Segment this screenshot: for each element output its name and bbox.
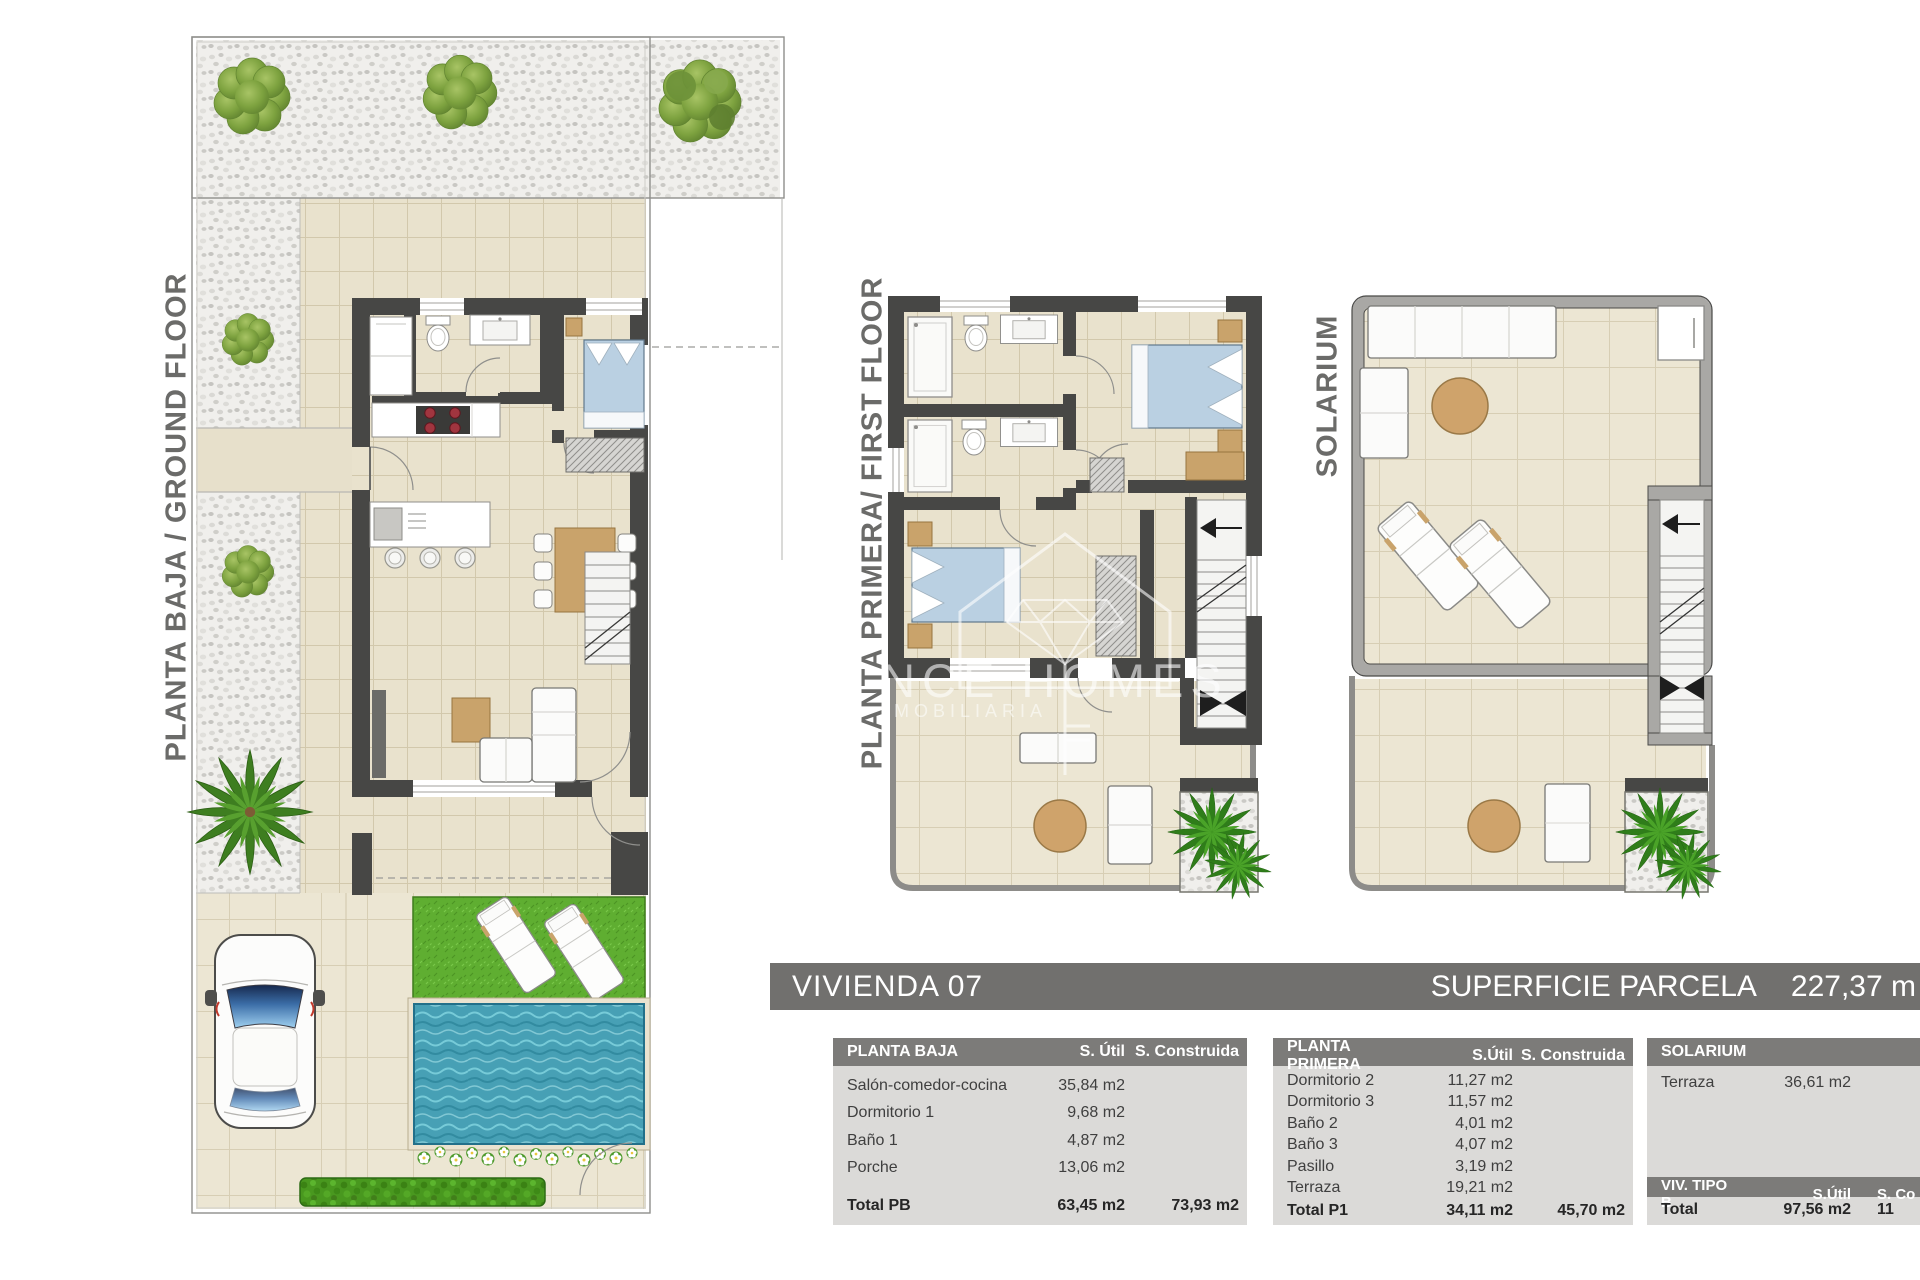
cell-label: Pasillo xyxy=(1287,1158,1413,1176)
cell-value: 3,19 m2 xyxy=(1413,1158,1513,1176)
table-row: Salón-comedor-cocina 35,84 m2 xyxy=(833,1072,1247,1100)
tv-unit xyxy=(372,690,386,778)
table-planta-baja: PLANTA BAJA S. Útil S. Construida Salón-… xyxy=(833,1038,1247,1225)
planter-wall xyxy=(1180,778,1258,792)
porch-pillar xyxy=(352,833,372,895)
table-total-row: Total PB 63,45 m2 73,93 m2 xyxy=(833,1193,1247,1221)
cell-value: 34,11 m2 xyxy=(1413,1202,1513,1220)
entrance-walkway xyxy=(196,428,352,492)
toilet xyxy=(964,316,988,351)
cell-value: 36,61 m2 xyxy=(1739,1074,1851,1092)
stairs xyxy=(1648,486,1712,745)
table-row: Baño 3 4,07 m2 xyxy=(1273,1135,1633,1157)
table-row: Baño 2 4,01 m2 xyxy=(1273,1113,1633,1135)
cell-label: Porche xyxy=(847,1159,1025,1177)
cell-label: Total xyxy=(1661,1201,1739,1219)
round-table xyxy=(1468,800,1520,852)
bed xyxy=(584,340,644,428)
cell-value: 11 xyxy=(1851,1201,1920,1219)
garden-wall xyxy=(611,832,648,895)
cell-value: 13,06 m2 xyxy=(1025,1159,1125,1177)
cell-label: Dormitorio 2 xyxy=(1287,1072,1413,1090)
label-solarium: SOLARIUM xyxy=(1312,315,1345,478)
table-header: PLANTA BAJA S. Útil S. Construida xyxy=(833,1038,1247,1066)
table-total-row: Total 97,56 m2 11 xyxy=(1647,1197,1920,1222)
parcel-area-value: 227,37 m xyxy=(1791,970,1916,1004)
shower xyxy=(908,317,952,397)
cell-value: 73,93 m2 xyxy=(1125,1197,1239,1215)
planter-wall xyxy=(1625,778,1708,792)
kitchen-island xyxy=(370,502,490,568)
coffee-table xyxy=(452,698,490,742)
table-planta-primera: PLANTA PRIMERA S.Útil S. Construida Dorm… xyxy=(1273,1038,1633,1225)
swimming-pool xyxy=(408,998,650,1150)
car xyxy=(205,935,325,1128)
table-row: Dormitorio 3 11,57 m2 xyxy=(1273,1092,1633,1114)
planter-box xyxy=(1616,788,1736,914)
first-floor-plan xyxy=(888,296,1285,913)
table-row: Terraza 36,61 m2 xyxy=(1647,1070,1920,1096)
ground-floor-plan xyxy=(188,37,784,1213)
sink xyxy=(1001,418,1058,447)
round-table xyxy=(1432,378,1488,434)
cell-label: Dormitorio 3 xyxy=(1287,1093,1413,1111)
col-construida: S. Construida xyxy=(1513,1047,1625,1065)
cell-label: Baño 1 xyxy=(847,1132,1025,1150)
table-header: SOLARIUM xyxy=(1647,1038,1920,1066)
cell-value: 97,56 m2 xyxy=(1739,1201,1851,1219)
sink xyxy=(470,315,530,345)
cell-value: 9,68 m2 xyxy=(1025,1104,1125,1122)
table-row: Terraza 19,21 m2 xyxy=(1273,1178,1633,1200)
col-util: S.Útil xyxy=(1413,1047,1513,1065)
table-row: Baño 1 4,87 m2 xyxy=(833,1127,1247,1155)
cell-label: Dormitorio 1 xyxy=(847,1104,1025,1122)
toilet xyxy=(962,420,986,455)
col-util: S. Útil xyxy=(1025,1043,1125,1061)
cell-value: 11,27 m2 xyxy=(1413,1072,1513,1090)
car-mirror xyxy=(205,990,217,1006)
shower xyxy=(908,420,952,492)
table-footer-header: VIV. TIPO B S.Útil S. Co xyxy=(1647,1177,1920,1197)
nightstand xyxy=(1218,320,1242,342)
cell-value: 4,07 m2 xyxy=(1413,1136,1513,1154)
cell-label: Baño 3 xyxy=(1287,1136,1413,1154)
closet xyxy=(1090,458,1124,492)
cell-value: 63,45 m2 xyxy=(1025,1197,1125,1215)
hedge xyxy=(300,1178,545,1206)
table-row: Dormitorio 2 11,27 m2 xyxy=(1273,1070,1633,1092)
cell-value: 4,01 m2 xyxy=(1413,1115,1513,1133)
bed xyxy=(1132,345,1242,428)
col-construida: S. Construida xyxy=(1125,1043,1239,1061)
label-ground-floor: PLANTA BAJA / GROUND FLOOR xyxy=(161,273,194,762)
stove xyxy=(416,406,470,434)
table-row: Porche 13,06 m2 xyxy=(833,1155,1247,1183)
nightstand xyxy=(908,522,932,546)
cell-value: 35,84 m2 xyxy=(1025,1077,1125,1095)
wardrobe xyxy=(1186,452,1244,480)
solarium-plan xyxy=(1352,296,1735,913)
nightstand xyxy=(908,624,932,648)
cell-label: Terraza xyxy=(1287,1179,1413,1197)
cell-label: Terraza xyxy=(1661,1074,1739,1092)
title-bar: VIVIENDA 07 SUPERFICIE PARCELA 227,37 m xyxy=(770,963,1920,1010)
label-first-floor: PLANTA PRIMERA/ FIRST FLOOR xyxy=(857,277,890,770)
nightstand xyxy=(1218,430,1242,452)
table-total-row: Total P1 34,11 m2 45,70 m2 xyxy=(1273,1199,1633,1223)
sink xyxy=(1001,315,1058,344)
round-table xyxy=(1034,800,1086,852)
cell-value: 4,87 m2 xyxy=(1025,1132,1125,1150)
table-title: SOLARIUM xyxy=(1661,1043,1746,1061)
floorplan-sheet: BLANCE HOMES INMOBILIARIA PLANTA BAJA / … xyxy=(0,0,1920,1280)
nightstand xyxy=(566,318,582,336)
watermark-brand-text: BLANCE HOMES xyxy=(771,654,1228,707)
toilet xyxy=(426,316,450,351)
parcel-area-label: SUPERFICIE PARCELA xyxy=(1431,970,1757,1004)
cell-value: 11,57 m2 xyxy=(1413,1093,1513,1111)
cell-label: Salón-comedor-cocina xyxy=(847,1077,1025,1095)
table-solarium: SOLARIUM Terraza 36,61 m2 VIV. TIPO B S.… xyxy=(1647,1038,1920,1225)
watermark-subtitle-text: INMOBILIARIA xyxy=(866,701,1047,721)
staircase xyxy=(585,552,630,664)
table-row: Pasillo 3,19 m2 xyxy=(1273,1156,1633,1178)
table-title: PLANTA BAJA xyxy=(847,1043,1025,1061)
cell-label: Total P1 xyxy=(1287,1202,1413,1220)
cell-label: Baño 2 xyxy=(1287,1115,1413,1133)
car-mirror xyxy=(313,990,325,1006)
planter-box xyxy=(1168,788,1286,914)
table-row: Dormitorio 1 9,68 m2 xyxy=(833,1100,1247,1128)
lawn xyxy=(413,895,645,1003)
cabinet xyxy=(1658,306,1704,360)
table-header: PLANTA PRIMERA S.Útil S. Construida xyxy=(1273,1038,1633,1066)
wardrobe xyxy=(566,438,644,472)
cell-value: 19,21 m2 xyxy=(1413,1179,1513,1197)
unit-title: VIVIENDA 07 xyxy=(770,970,983,1004)
bed xyxy=(912,548,1020,622)
cell-value: 45,70 m2 xyxy=(1513,1202,1625,1220)
cell-label: Total PB xyxy=(847,1197,1025,1215)
